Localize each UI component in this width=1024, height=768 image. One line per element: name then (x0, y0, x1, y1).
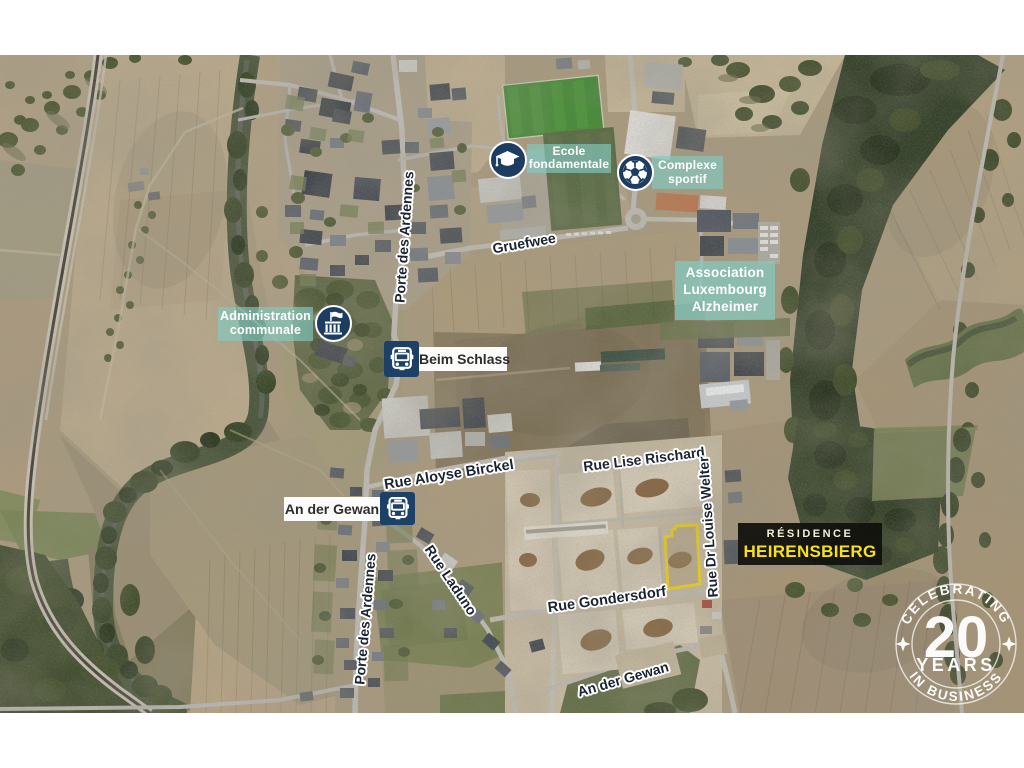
svg-text:YEARS: YEARS (916, 655, 996, 675)
